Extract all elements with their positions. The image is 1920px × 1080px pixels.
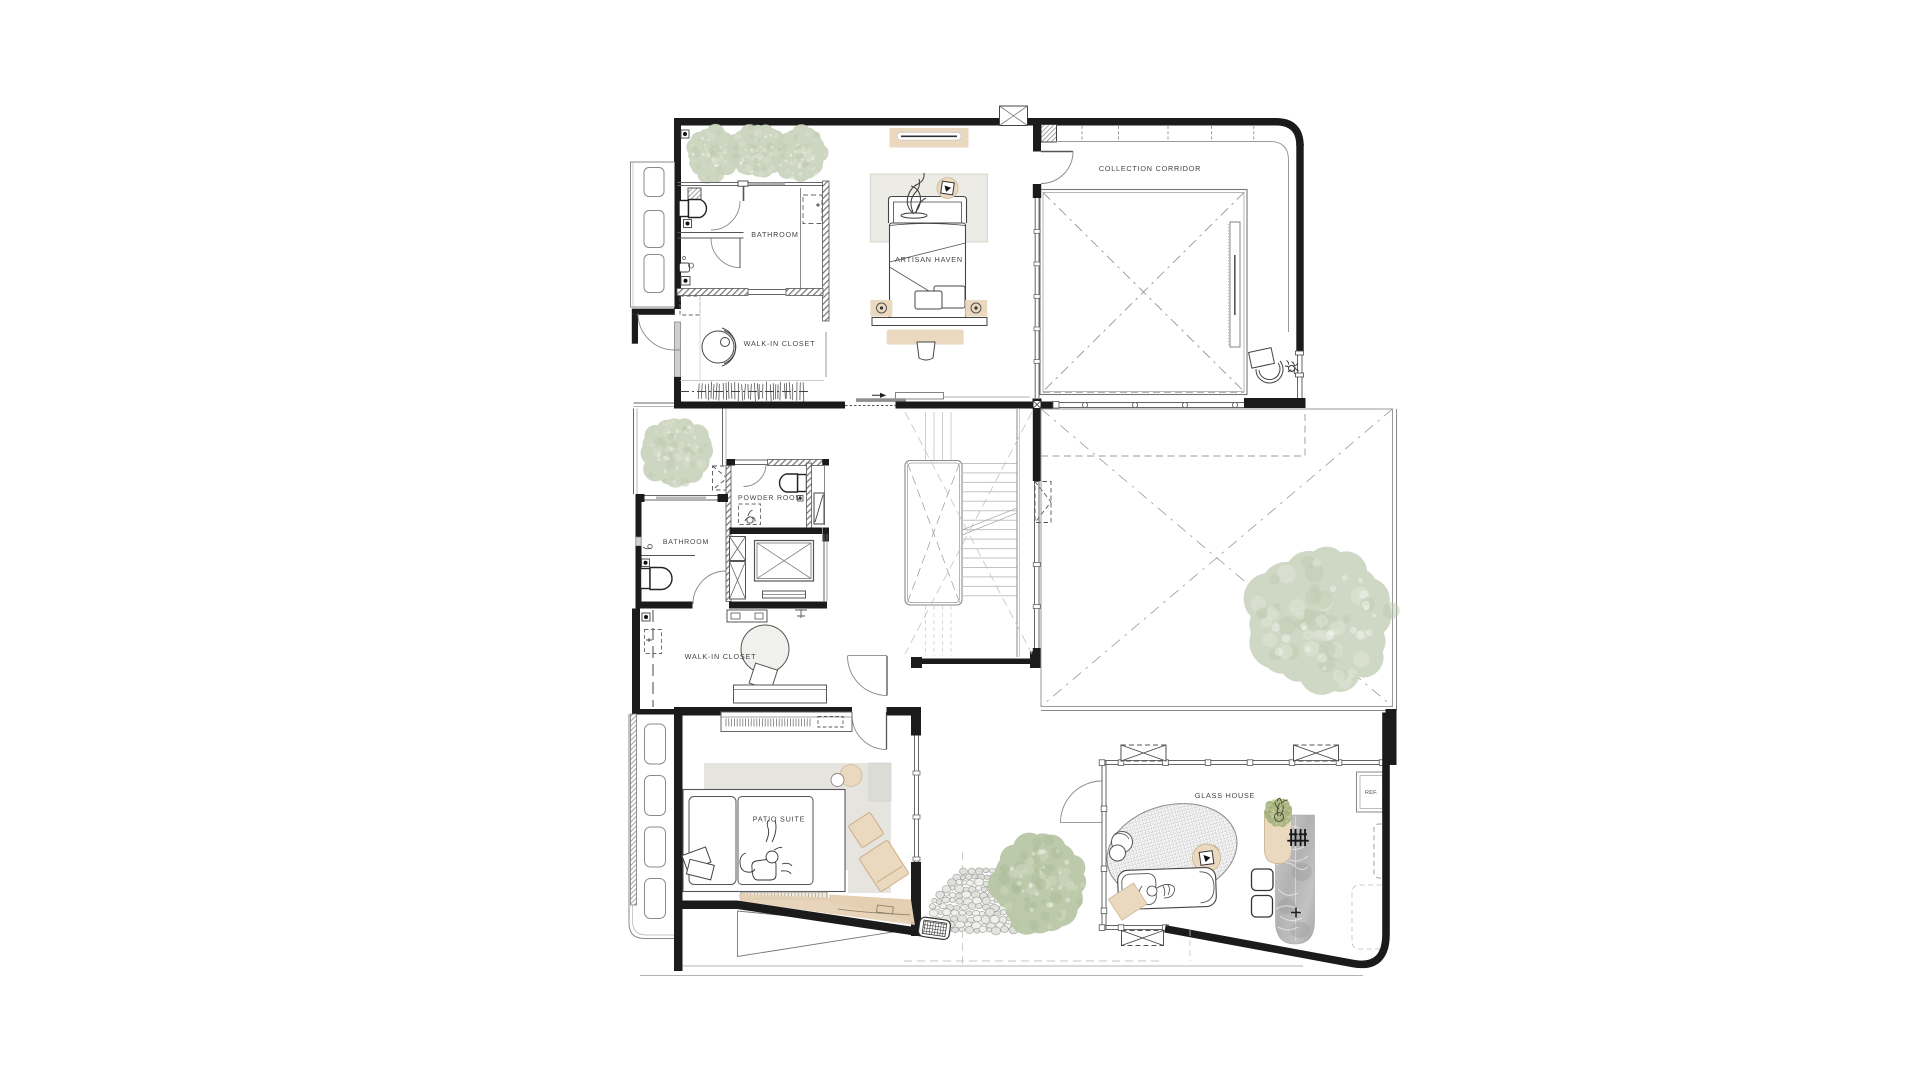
svg-text:POWDER ROOM: POWDER ROOM <box>738 495 802 502</box>
svg-text:WALK-IN CLOSET: WALK-IN CLOSET <box>685 652 757 661</box>
svg-text:PATIO SUITE: PATIO SUITE <box>753 815 805 824</box>
svg-text:ARTISAN HAVEN: ARTISAN HAVEN <box>895 255 963 264</box>
svg-text:COLLECTION CORRIDOR: COLLECTION CORRIDOR <box>1099 164 1201 173</box>
svg-text:BATHROOM: BATHROOM <box>663 539 709 546</box>
svg-text:REF.: REF. <box>1365 790 1378 796</box>
svg-text:BATHROOM: BATHROOM <box>751 230 798 239</box>
svg-text:WALK-IN CLOSET: WALK-IN CLOSET <box>744 339 816 348</box>
svg-text:GLASS HOUSE: GLASS HOUSE <box>1195 791 1255 800</box>
